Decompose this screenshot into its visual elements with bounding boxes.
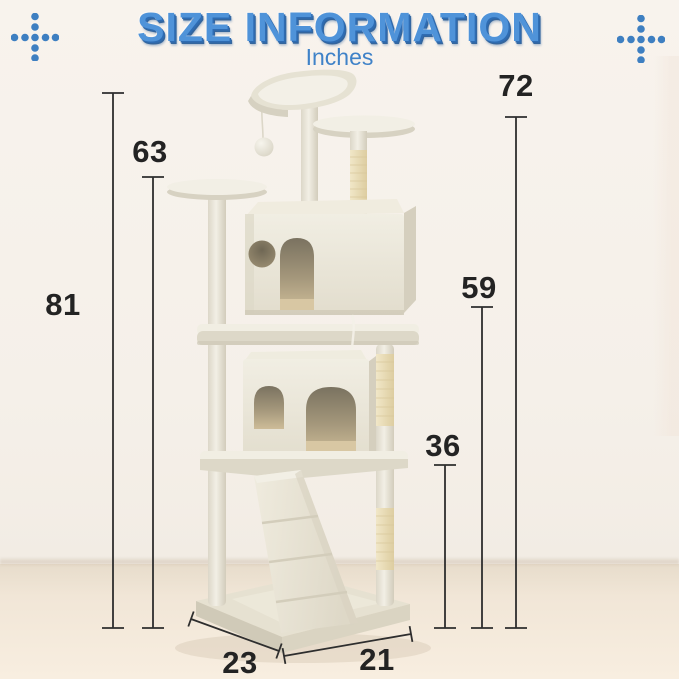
- dimension-label-72: 72: [498, 68, 533, 104]
- cat-tree: [167, 70, 431, 663]
- size-information-infographic: SIZE INFORMATION Inches: [0, 0, 679, 679]
- dimension-line-63: [142, 177, 164, 628]
- dimension-line-81: [102, 93, 124, 628]
- dimension-label-81: 81: [45, 287, 80, 323]
- dimension-label-23: 23: [222, 645, 257, 679]
- dimension-line-72: [505, 117, 527, 628]
- dimension-label-63: 63: [132, 134, 167, 170]
- dimension-line-36: [434, 465, 456, 628]
- dimension-label-36: 36: [425, 428, 460, 464]
- cat-tree-illustration: [0, 0, 679, 679]
- dimension-label-59: 59: [461, 270, 496, 306]
- dimension-label-21: 21: [359, 642, 394, 678]
- dimension-line-59: [471, 307, 493, 628]
